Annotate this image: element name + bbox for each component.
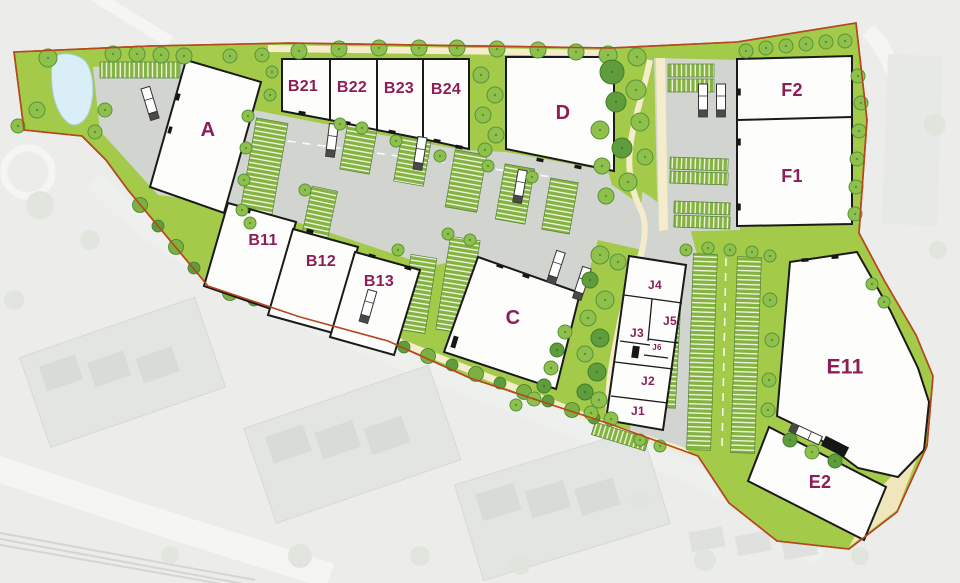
tree-center-dot <box>844 40 846 42</box>
tree-center-dot <box>621 147 623 149</box>
context-tree-icon <box>510 555 530 575</box>
tree-center-dot <box>855 186 857 188</box>
tree-center-dot <box>771 339 773 341</box>
tree-center-dot <box>639 439 641 441</box>
context-tree-icon <box>851 547 869 565</box>
tree-center-dot <box>94 131 96 133</box>
tree-center-dot <box>857 75 859 77</box>
tree-center-dot <box>480 74 482 76</box>
context-tree-icon <box>161 546 179 564</box>
tree-center-dot <box>537 49 539 51</box>
loading-door-mark <box>801 258 808 262</box>
tree-center-dot <box>834 460 836 462</box>
tree-center-dot <box>229 55 231 57</box>
tree-center-dot <box>245 147 247 149</box>
tree-center-dot <box>639 121 641 123</box>
context-tree-icon <box>26 191 54 219</box>
tree-center-dot <box>883 301 885 303</box>
site-plan-drawing <box>0 0 960 583</box>
tree-center-dot <box>854 213 856 215</box>
tree-center-dot <box>707 247 709 249</box>
tree-center-dot <box>269 94 271 96</box>
loading-door-mark <box>737 89 741 96</box>
tree-center-dot <box>751 251 753 253</box>
tree-center-dot <box>183 55 185 57</box>
tree-center-dot <box>487 165 489 167</box>
loading-door-mark <box>831 255 838 259</box>
tree-center-dot <box>805 43 807 45</box>
tree-center-dot <box>515 404 517 406</box>
context-tree-icon <box>410 546 430 566</box>
context-tree-icon <box>929 241 947 259</box>
context-tree-icon <box>631 491 649 509</box>
tree-center-dot <box>789 439 791 441</box>
tree-center-dot <box>338 48 340 50</box>
tree-center-dot <box>584 353 586 355</box>
tree-center-dot <box>860 102 862 104</box>
tree-center-dot <box>644 156 646 158</box>
tree-center-dot <box>361 127 363 129</box>
tree-center-dot <box>811 451 813 453</box>
tree-center-dot <box>247 115 249 117</box>
tree-center-dot <box>494 94 496 96</box>
parking-row <box>674 215 730 229</box>
tree-center-dot <box>587 317 589 319</box>
site-plan-canvas: A B21 B22 B23 B24 D F2 F1 B11 B12 B13 C … <box>0 0 960 583</box>
tree-center-dot <box>556 349 558 351</box>
tree-center-dot <box>825 41 827 43</box>
tree-center-dot <box>564 331 566 333</box>
tree-center-dot <box>271 71 273 73</box>
tree-center-dot <box>469 239 471 241</box>
tree-center-dot <box>496 48 498 50</box>
tree-center-dot <box>160 54 162 56</box>
tree-center-dot <box>456 47 458 49</box>
tree-center-dot <box>607 54 609 56</box>
tree-center-dot <box>550 367 552 369</box>
tree-center-dot <box>395 140 397 142</box>
tree-center-dot <box>439 155 441 157</box>
tree-center-dot <box>575 51 577 53</box>
tree-center-dot <box>659 445 661 447</box>
tree-center-dot <box>765 47 767 49</box>
tree-center-dot <box>615 101 617 103</box>
tree-center-dot <box>599 337 601 339</box>
tree-center-dot <box>598 399 600 401</box>
tree-center-dot <box>543 385 545 387</box>
tree-center-dot <box>397 249 399 251</box>
context-tree-icon <box>924 114 946 136</box>
loading-door-mark <box>737 139 741 146</box>
tree-center-dot <box>635 89 637 91</box>
context-tree-icon <box>694 549 716 571</box>
building-b23-footprint <box>377 59 423 139</box>
tree-center-dot <box>636 56 638 58</box>
tree-center-dot <box>104 109 106 111</box>
tree-center-dot <box>112 53 114 55</box>
tree-center-dot <box>599 254 601 256</box>
tree-center-dot <box>590 412 592 414</box>
parking-row <box>100 62 180 78</box>
context-tree-icon <box>80 230 100 250</box>
parking-row <box>674 201 730 215</box>
tree-center-dot <box>447 233 449 235</box>
tree-center-dot <box>601 165 603 167</box>
tree-center-dot <box>610 418 612 420</box>
building-f-footprint <box>737 56 852 226</box>
loading-door-mark <box>737 204 741 211</box>
tree-center-dot <box>627 181 629 183</box>
tree-center-dot <box>729 249 731 251</box>
tree-center-dot <box>418 47 420 49</box>
tree-center-dot <box>304 189 306 191</box>
parking-row <box>670 157 728 171</box>
tree-center-dot <box>136 53 138 55</box>
tree-center-dot <box>298 50 300 52</box>
tree-center-dot <box>378 47 380 49</box>
tree-center-dot <box>241 209 243 211</box>
tree-center-dot <box>596 371 598 373</box>
building-b24-footprint <box>423 59 469 149</box>
tree-center-dot <box>599 129 601 131</box>
parking-row <box>670 171 728 185</box>
tree-center-dot <box>17 125 19 127</box>
tree-center-dot <box>617 261 619 263</box>
tree-center-dot <box>339 123 341 125</box>
tree-center-dot <box>769 299 771 301</box>
tree-center-dot <box>484 149 486 151</box>
context-tree-icon <box>4 290 24 310</box>
tree-center-dot <box>261 54 263 56</box>
tree-center-dot <box>871 283 873 285</box>
tree-center-dot <box>858 130 860 132</box>
tree-center-dot <box>856 158 858 160</box>
tree-center-dot <box>589 279 591 281</box>
tree-center-dot <box>767 409 769 411</box>
tree-center-dot <box>495 134 497 136</box>
truck-icon <box>699 84 708 117</box>
tree-center-dot <box>47 57 49 59</box>
tree-center-dot <box>611 71 613 73</box>
tree-center-dot <box>769 255 771 257</box>
tree-center-dot <box>785 45 787 47</box>
truck-icon <box>717 84 726 117</box>
building-b21-footprint <box>282 59 330 120</box>
context-building <box>882 54 943 226</box>
tree-center-dot <box>685 249 687 251</box>
tree-center-dot <box>243 179 245 181</box>
tree-center-dot <box>531 176 533 178</box>
tree-center-dot <box>768 379 770 381</box>
context-tree-icon <box>288 544 312 568</box>
tree-center-dot <box>36 109 38 111</box>
tree-center-dot <box>745 50 747 52</box>
tree-center-dot <box>604 299 606 301</box>
tree-center-dot <box>584 391 586 393</box>
parking-row <box>668 64 714 77</box>
tree-center-dot <box>249 222 251 224</box>
tree-center-dot <box>605 195 607 197</box>
tree-center-dot <box>482 114 484 116</box>
